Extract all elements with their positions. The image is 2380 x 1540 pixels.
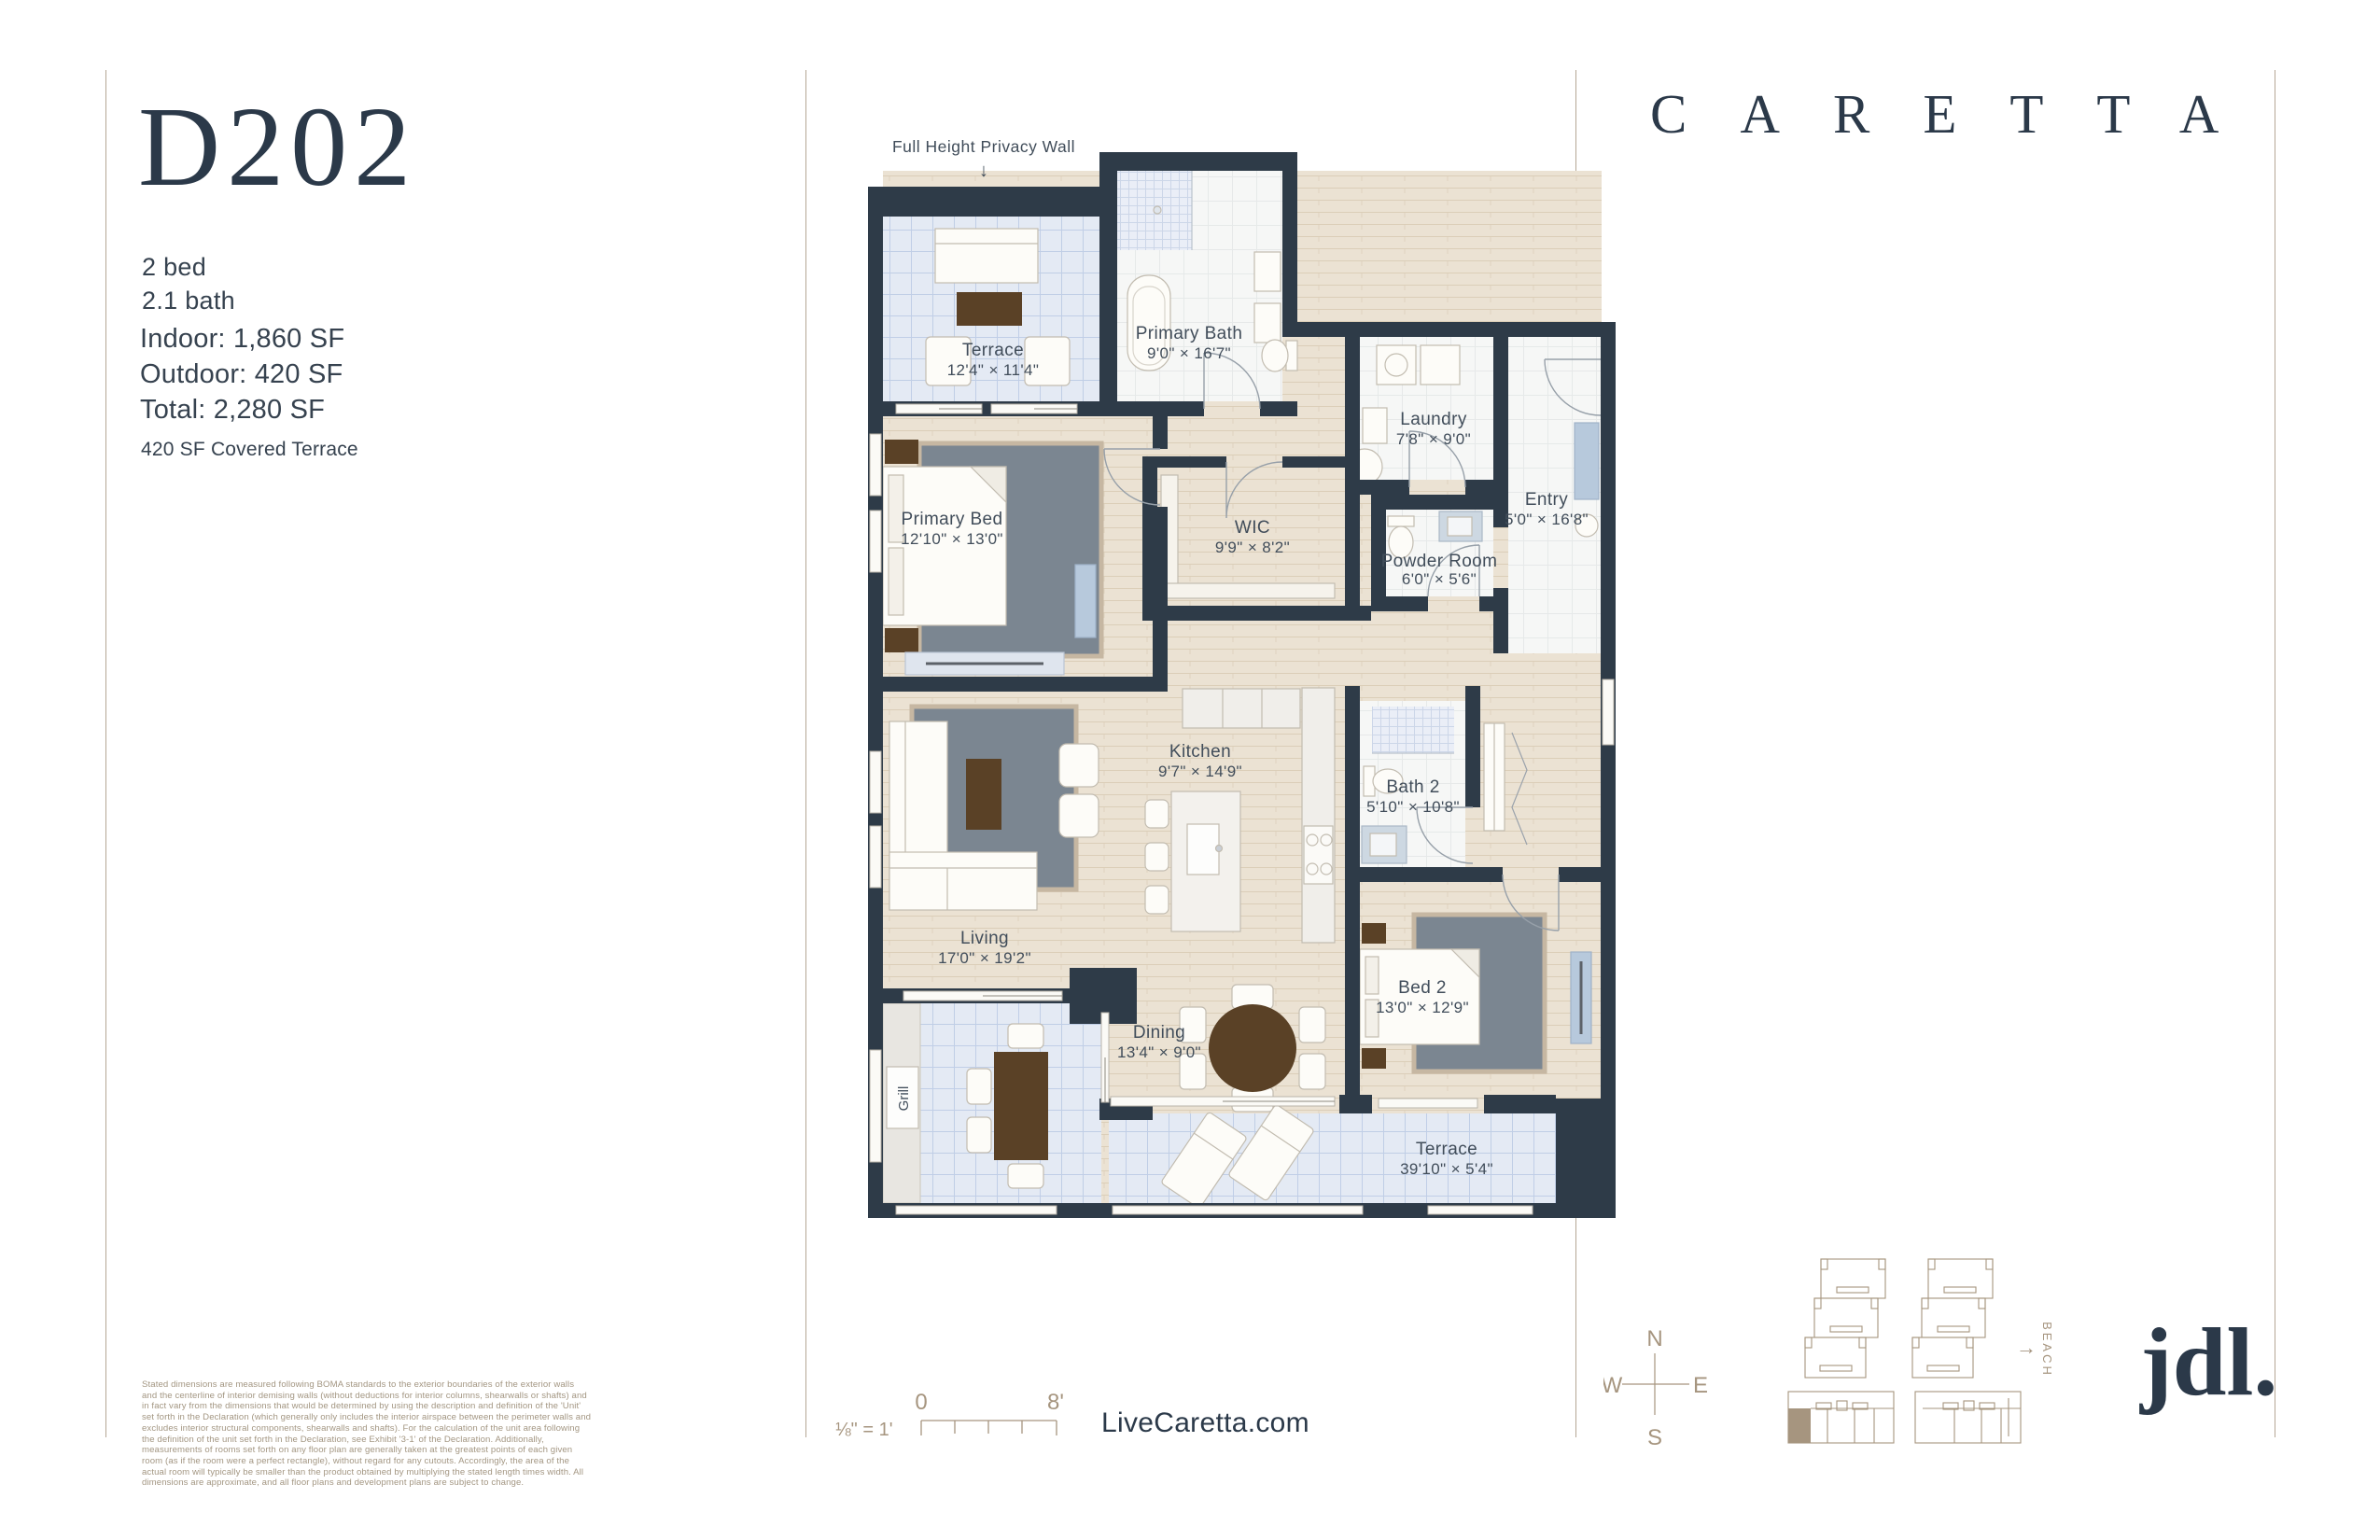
scale-ruler — [921, 1421, 1057, 1435]
terrace-note: 420 SF Covered Terrace — [141, 439, 358, 461]
website-link[interactable]: LiveCaretta.com — [1101, 1407, 1309, 1439]
patio-chair — [1008, 1164, 1043, 1188]
svg-text:Bed 2: Bed 2 — [1398, 978, 1447, 998]
patio-chair — [1008, 1024, 1043, 1048]
svg-text:Primary Bath: Primary Bath — [1136, 324, 1243, 343]
column-divider-1 — [105, 70, 106, 1437]
column-divider-4 — [2275, 70, 2275, 1437]
svg-text:12'10" × 13'0": 12'10" × 13'0" — [901, 530, 1003, 548]
floor-plan: Full Height Privacy Wall ↓ Terrace12'4" … — [868, 79, 1624, 1241]
sofa — [889, 852, 1037, 910]
coffee-table — [966, 759, 1001, 830]
grill-label: Grill — [896, 1086, 912, 1112]
armchair — [1059, 794, 1099, 837]
svg-text:13'4" × 9'0": 13'4" × 9'0" — [1117, 1043, 1201, 1061]
scale-bar: ⅛" = 1' 0 8' — [833, 1383, 1076, 1453]
svg-text:12'4" × 11'4": 12'4" × 11'4" — [947, 361, 1040, 379]
armchair — [1059, 744, 1099, 787]
svg-text:Living: Living — [960, 929, 1009, 948]
unit-location-highlight — [1788, 1408, 1811, 1443]
nightstand — [1362, 923, 1386, 944]
svg-text:Kitchen: Kitchen — [1169, 742, 1231, 762]
svg-text:5'10" × 10'8": 5'10" × 10'8" — [1366, 798, 1460, 816]
svg-text:13'0" × 12'9": 13'0" × 12'9" — [1376, 999, 1469, 1016]
scale-ratio: ⅛" = 1' — [835, 1420, 893, 1440]
svg-text:Dining: Dining — [1133, 1023, 1185, 1043]
svg-text:9'7" × 14'9": 9'7" × 14'9" — [1158, 763, 1242, 780]
nightstand — [885, 440, 918, 464]
dryer — [1421, 345, 1460, 385]
scale-eight: 8' — [1047, 1390, 1064, 1415]
room-label-primary-bed: Primary Bed12'10" × 13'0" — [901, 510, 1003, 548]
svg-text:Primary Bed: Primary Bed — [902, 510, 1003, 529]
beach-label: BEACH — [2040, 1322, 2054, 1378]
unit-number: D202 — [138, 82, 417, 213]
svg-text:9'9" × 8'2": 9'9" × 8'2" — [1215, 539, 1290, 556]
down-arrow-icon: ↓ — [979, 161, 988, 181]
tv-console — [1075, 565, 1096, 637]
privacy-wall — [868, 187, 1117, 217]
legal-disclaimer: Stated dimensions are measured following… — [142, 1379, 592, 1489]
svg-text:Full Height Privacy Wall: Full Height Privacy Wall — [892, 137, 1075, 156]
patio-chair — [967, 1069, 991, 1104]
compass-rose: N S W E — [1603, 1323, 1715, 1459]
beach-arrow-icon: → — [2016, 1336, 2037, 1359]
svg-text:Terrace: Terrace — [1416, 1140, 1477, 1159]
patio-chair — [967, 1117, 991, 1153]
washer — [1377, 345, 1416, 385]
room-label-laundry: Laundry7'8" × 9'0" — [1396, 410, 1471, 448]
svg-text:5'0" × 16'8": 5'0" × 16'8" — [1505, 511, 1589, 528]
kitchen-counter — [1302, 688, 1335, 943]
stool — [1145, 843, 1169, 871]
nightstand — [1362, 1048, 1386, 1069]
column-divider-2 — [805, 70, 806, 1437]
dining-chair — [1299, 1007, 1325, 1043]
indoor-area: Indoor: 1,860 SF — [140, 321, 344, 357]
brand-wordmark: CARETTA — [1650, 82, 2272, 147]
console-table — [1575, 423, 1599, 499]
svg-text:Terrace: Terrace — [962, 341, 1024, 360]
stool — [1145, 886, 1169, 914]
laundry-sink — [1363, 408, 1387, 443]
room-label-kitchen: Kitchen9'7" × 14'9" — [1158, 742, 1242, 780]
total-area: Total: 2,280 SF — [140, 392, 344, 427]
island-sink — [1187, 824, 1219, 875]
developer-logo: jdl. — [2140, 1307, 2277, 1418]
room-label-primary-bath: Primary Bath9'0" × 16'7" — [1136, 324, 1243, 362]
svg-text:Laundry: Laundry — [1400, 410, 1467, 429]
svg-text:WIC: WIC — [1235, 518, 1270, 538]
sink — [1254, 303, 1281, 343]
bath-count: 2.1 bath — [142, 284, 235, 317]
building-outline-upper-left — [1805, 1259, 1885, 1378]
compass-south: S — [1647, 1425, 1662, 1450]
dining-table — [1209, 1004, 1296, 1092]
site-plan: → BEACH — [1771, 1253, 2070, 1463]
patio-table — [994, 1052, 1048, 1160]
sink — [1254, 252, 1281, 291]
compass-north: N — [1646, 1326, 1662, 1351]
building-outline-upper-right — [1912, 1259, 1993, 1378]
dining-chair — [1299, 1054, 1325, 1089]
building-outline-lower-right — [1915, 1392, 2021, 1443]
toilet — [1388, 516, 1414, 526]
compass-east: E — [1693, 1373, 1708, 1398]
svg-text:17'0" × 19'2": 17'0" × 19'2" — [938, 949, 1031, 967]
svg-text:Bath 2: Bath 2 — [1386, 777, 1439, 797]
outdoor-sofa — [935, 229, 1038, 283]
outdoor-coffee-table — [957, 292, 1022, 326]
kitchen-counter — [1183, 689, 1300, 728]
nightstand — [885, 628, 918, 652]
svg-text:7'8" × 9'0": 7'8" × 9'0" — [1396, 430, 1471, 448]
outdoor-area: Outdoor: 420 SF — [140, 357, 344, 392]
unit-summary-panel: 2 bed 2.1 bath — [142, 250, 235, 317]
svg-text:39'10" × 5'4": 39'10" × 5'4" — [1400, 1160, 1493, 1178]
svg-text:Entry: Entry — [1525, 490, 1568, 510]
svg-text:Powder Room: Powder Room — [1381, 552, 1498, 571]
svg-text:6'0" × 5'6": 6'0" × 5'6" — [1402, 570, 1477, 588]
compass-west: W — [1603, 1373, 1623, 1398]
bed-count: 2 bed — [142, 250, 235, 284]
toilet — [1262, 340, 1288, 371]
building-outline-lower-left — [1788, 1392, 1894, 1443]
stool — [1145, 800, 1169, 828]
svg-text:9'0" × 16'7": 9'0" × 16'7" — [1147, 344, 1231, 362]
area-stats: Indoor: 1,860 SF Outdoor: 420 SF Total: … — [140, 321, 344, 427]
scale-zero: 0 — [915, 1390, 927, 1415]
floorplan-sheet: { "colors": { "navy": "#2b3949", "tan": … — [0, 0, 2380, 1540]
